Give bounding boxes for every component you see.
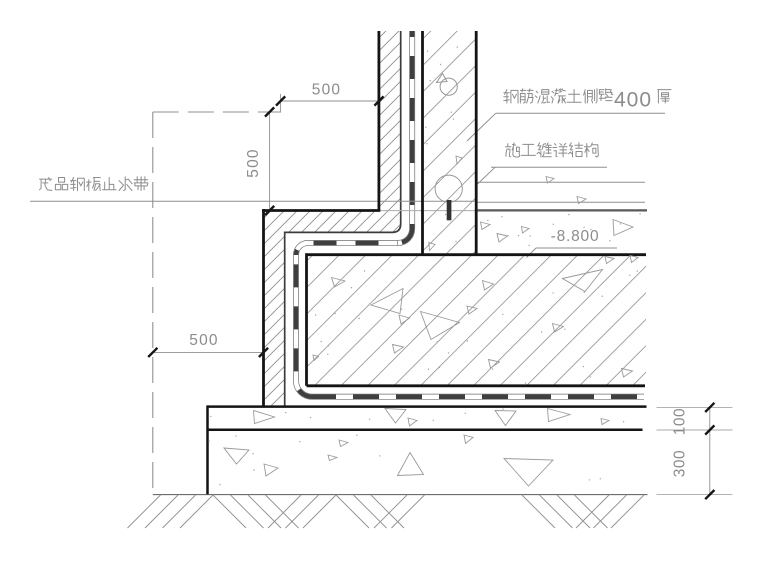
svg-text:100: 100: [672, 408, 689, 435]
svg-text:500: 500: [312, 82, 341, 99]
svg-text:-8.800: -8.800: [551, 228, 600, 245]
svg-text:300: 300: [672, 450, 689, 477]
svg-text:500: 500: [189, 332, 218, 349]
svg-text:400: 400: [614, 89, 652, 112]
svg-text:500: 500: [245, 148, 262, 177]
